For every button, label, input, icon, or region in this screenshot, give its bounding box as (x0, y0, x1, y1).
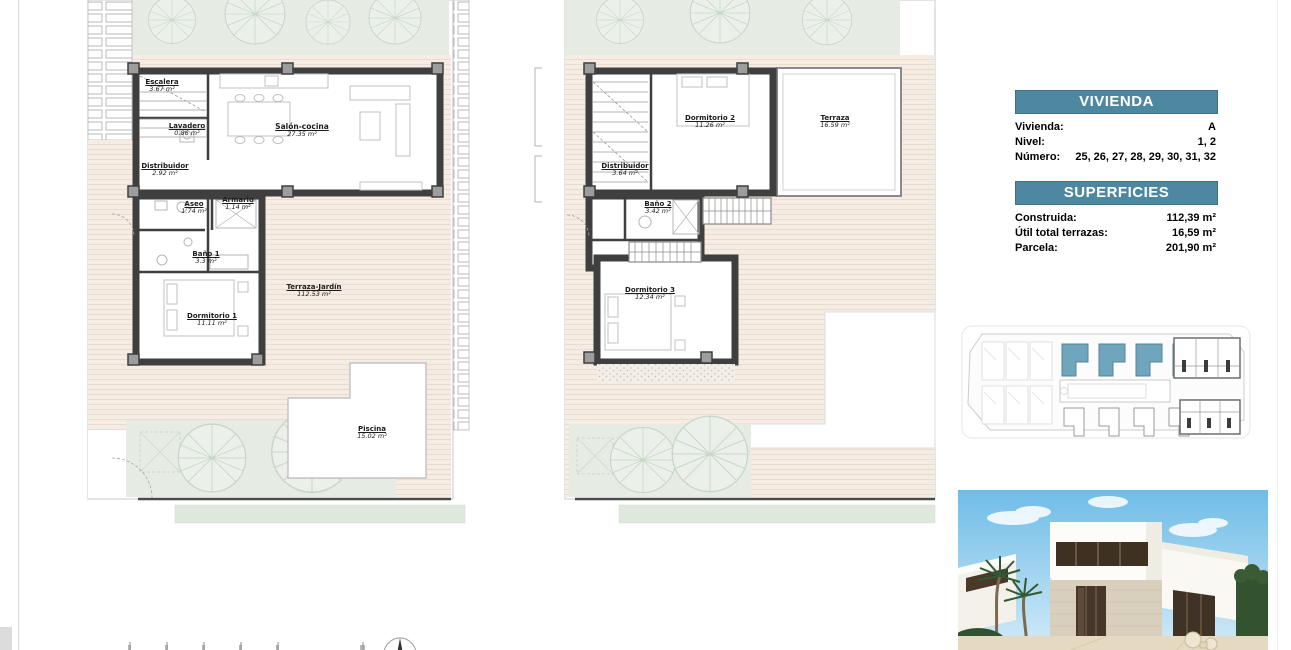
gravel-band (597, 364, 735, 382)
villa-render-photo (958, 490, 1268, 650)
room-label-armario: Armario 1.14 m² (222, 196, 254, 212)
first-floor-plan-drawing (545, 0, 945, 525)
wardrobe-lower (629, 242, 701, 262)
compass-icon (380, 632, 420, 650)
garden-top (565, 0, 900, 55)
scale-bar (95, 630, 395, 650)
neighbour-house (958, 554, 1016, 634)
info-row-construida: Construida: 112,39 m² (1015, 211, 1216, 225)
room-label-aseo: Aseo 1.74 m² (181, 200, 206, 216)
room-label-piscina: Piscina 15.02 m² (357, 425, 387, 441)
room-label-distribuidor-p1: Distribuidor 3.64 m² (601, 162, 648, 178)
superficies-title: SUPERFICIES (1064, 184, 1170, 201)
info-row-util-terrazas: Útil total terrazas: 16,59 m² (1015, 226, 1216, 240)
room-label-dormitorio-3: Dormitorio 3 12.34 m² (625, 286, 675, 302)
room-label-bano-2: Baño 2 3.42 m² (644, 200, 671, 216)
hedge-strip-bottom (175, 505, 465, 523)
room-label-lavadero: Lavadero 0.86 m² (169, 122, 206, 138)
room-label-terraza-jardin: Terraza-Jardín 112.53 m² (286, 283, 341, 299)
sheet-corner-block (0, 627, 12, 650)
brochure-sheet: { "info": { "vivienda": { "title": "VIVI… (0, 0, 1291, 650)
sheet-left-rule (18, 0, 19, 650)
vivienda-title: VIVIENDA (1079, 93, 1154, 110)
site-pool (1060, 380, 1170, 402)
info-row-vivienda: Vivienda: A (1015, 120, 1216, 134)
room-label-escalera: Escalera 3.67 m² (145, 78, 178, 94)
garden-top (132, 0, 449, 55)
ground-floor-plan-drawing (60, 0, 472, 525)
ground-floor-plan: Escalera 3.67 m² Lavadero 0.86 m² Distri… (60, 0, 472, 525)
info-row-parcela: Parcela: 201,90 m² (1015, 241, 1216, 255)
terraza-room (777, 68, 901, 196)
dimension-brackets (530, 60, 544, 210)
site-plan (958, 318, 1255, 445)
vivienda-header: VIVIENDA (1015, 90, 1218, 114)
garden-bottom (569, 416, 751, 497)
room-label-distribuidor-pb: Distribuidor 2.92 m² (141, 162, 188, 178)
pergola-fence-left (88, 0, 132, 498)
room-label-bano-1: Baño 1 3.3 m² (192, 250, 219, 266)
sheet-right-rule (1277, 0, 1278, 650)
info-row-nivel: Nivel: 1, 2 (1015, 135, 1216, 149)
superficies-header: SUPERFICIES (1015, 181, 1218, 205)
room-label-dormitorio-2: Dormitorio 2 11.26 m² (685, 114, 735, 130)
hedge-strip-bottom (619, 505, 935, 523)
pergola-fence-right (453, 0, 469, 430)
wardrobe-upper (703, 198, 771, 224)
room-label-dormitorio-1: Dormitorio 1 11.11 m² (187, 312, 237, 328)
info-row-numero: Número: 25, 26, 27, 28, 29, 30, 31, 32 (1015, 150, 1216, 164)
room-label-salon-cocina: Salón-cocina 27.35 m² (275, 122, 329, 139)
room-label-terraza: Terraza 16.59 m² (820, 114, 850, 130)
first-floor-plan: Dormitorio 2 11.26 m² Terraza 16.59 m² D… (545, 0, 945, 525)
